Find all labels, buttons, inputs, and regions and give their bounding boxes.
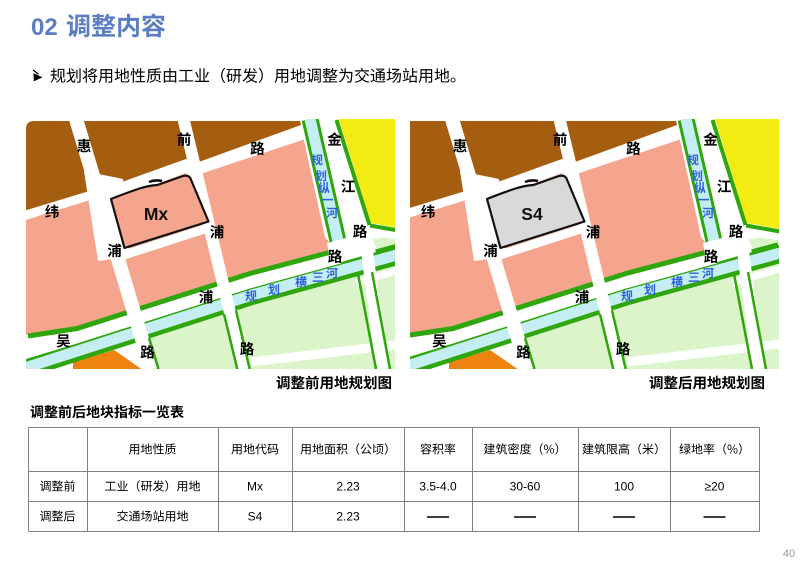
svg-text:Mx: Mx	[247, 480, 263, 494]
svg-text:100: 100	[614, 480, 634, 494]
svg-text:2.23: 2.23	[336, 510, 360, 524]
svg-text:2.23: 2.23	[336, 480, 360, 494]
svg-text:3.5-4.0: 3.5-4.0	[419, 480, 457, 494]
svg-text:Mx: Mx	[144, 204, 169, 224]
svg-text:40: 40	[783, 548, 795, 560]
svg-text:≥20: ≥20	[705, 480, 725, 494]
svg-text:S4: S4	[248, 510, 263, 524]
svg-text:02: 02	[31, 14, 58, 41]
svg-text:S4: S4	[521, 204, 543, 224]
svg-text:30-60: 30-60	[510, 480, 541, 494]
